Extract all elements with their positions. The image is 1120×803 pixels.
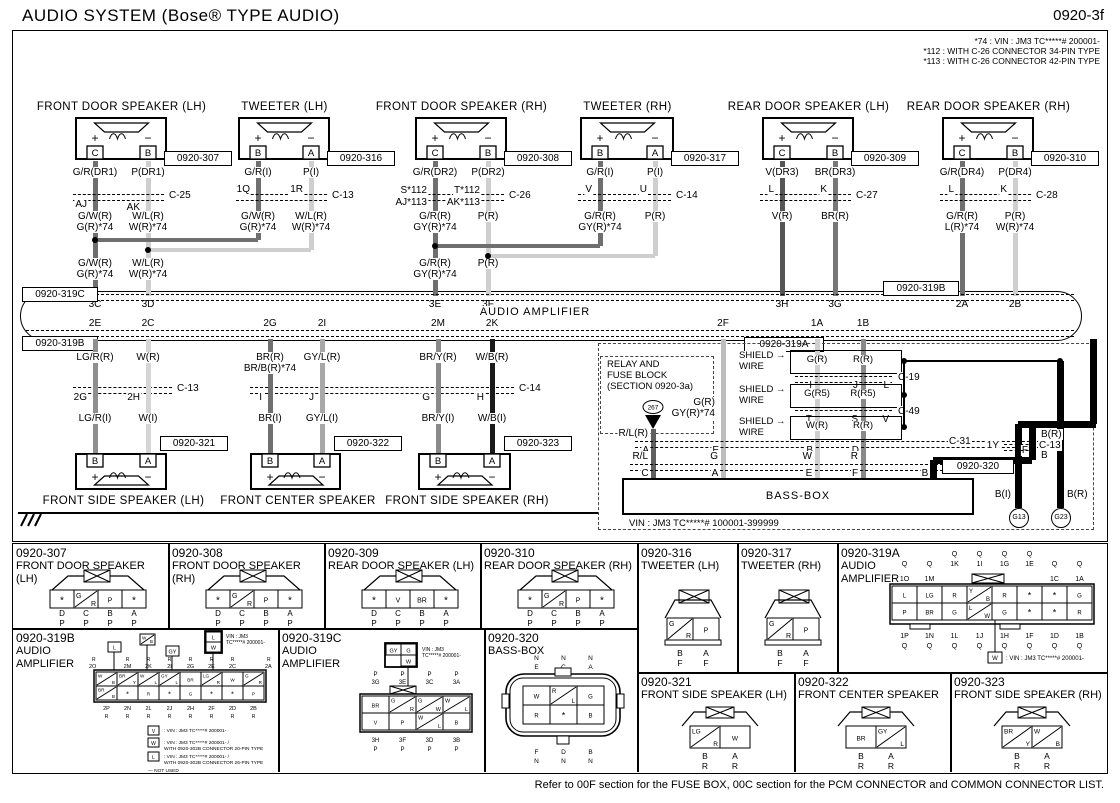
table-line xyxy=(637,672,1108,674)
svg-text:3H: 3H xyxy=(372,738,380,744)
wiring-diagram-page: AUDIO SYSTEM (Bose® TYPE AUDIO) 0920-3f … xyxy=(0,0,1120,803)
svg-text:E: E xyxy=(534,664,539,671)
table-line xyxy=(950,672,952,772)
svg-text:Q: Q xyxy=(902,561,908,568)
svg-text:GY: GY xyxy=(161,674,168,679)
table-line xyxy=(737,543,739,672)
connector-line xyxy=(250,387,514,394)
svg-text:L: L xyxy=(438,724,441,730)
svg-text:*: * xyxy=(1028,591,1032,601)
speaker-glyph: BA+− xyxy=(580,117,675,161)
svg-text:P: P xyxy=(527,619,532,628)
svg-text:*: * xyxy=(600,596,604,607)
svg-text:*: * xyxy=(1028,608,1032,618)
svg-text:*: * xyxy=(1053,608,1057,618)
pin-label: K xyxy=(819,184,828,195)
svg-text:P: P xyxy=(419,619,424,628)
table-cell-name: TWEETER (RH) xyxy=(741,560,833,573)
svg-text:B: B xyxy=(455,720,459,726)
svg-text:1L: 1L xyxy=(951,633,959,640)
svg-text:A: A xyxy=(652,148,659,159)
connector-pinout-glyph: NNNECAWRLGR*BFDBNNN xyxy=(498,650,628,768)
svg-text:P: P xyxy=(264,598,269,605)
svg-text:R: R xyxy=(686,633,691,640)
svg-text:BR: BR xyxy=(417,598,427,605)
wire-label: G(R)*74 xyxy=(76,222,115,233)
svg-text:2E: 2E xyxy=(208,664,215,670)
connector-ref: 0920-316 xyxy=(327,151,395,166)
connector-ref: 0920-319B xyxy=(883,281,959,296)
svg-text:*: * xyxy=(132,596,136,607)
svg-text:R: R xyxy=(1002,594,1007,600)
svg-text:P: P xyxy=(902,611,906,617)
svg-text:Q: Q xyxy=(1052,561,1058,568)
pin-label: I xyxy=(258,392,263,403)
wire-label: W/L(R) xyxy=(131,258,165,269)
wire xyxy=(651,429,656,478)
wire-label: R(R) xyxy=(852,421,874,431)
svg-text:P: P xyxy=(576,598,581,605)
svg-text:Q: Q xyxy=(927,561,933,568)
svg-text:N: N xyxy=(561,655,566,662)
svg-text:BR: BR xyxy=(187,677,194,682)
junction-dot xyxy=(901,424,907,430)
wire-label: G/W(R) xyxy=(77,211,113,222)
svg-text:3B: 3B xyxy=(453,738,460,744)
svg-text:Q: Q xyxy=(1027,643,1033,650)
shield-wire-label: WIRE xyxy=(738,396,765,406)
svg-text:*: * xyxy=(168,689,171,698)
wire-label: G/W(R) xyxy=(240,211,276,222)
wire xyxy=(833,161,838,296)
svg-text:B: B xyxy=(832,148,838,159)
wire-label: GY/L(I) xyxy=(305,413,339,424)
wire-label: W(R) xyxy=(135,352,160,363)
svg-text:1K: 1K xyxy=(950,561,959,568)
wire-label: P(DR1) xyxy=(130,167,165,178)
wire-label: R/L(R) xyxy=(618,428,649,439)
svg-text:*: * xyxy=(444,596,448,607)
wire-label: G xyxy=(709,451,719,462)
amp-pin-label: 2K xyxy=(485,318,499,329)
svg-text:A: A xyxy=(599,609,605,618)
connector-ref: 0920-323 xyxy=(504,436,572,451)
wire-label: LG/R(R) xyxy=(75,352,114,363)
svg-text:P: P xyxy=(599,619,604,628)
svg-text:P: P xyxy=(427,672,431,678)
wire xyxy=(1015,424,1022,508)
svg-text:W: W xyxy=(984,614,990,620)
svg-text:R: R xyxy=(231,657,235,663)
pin-label: AJ*113 xyxy=(394,197,428,208)
svg-text:G: G xyxy=(1002,611,1007,617)
fuse-icon: 267 xyxy=(638,398,668,432)
svg-text:F: F xyxy=(777,658,782,668)
wire-label: BR/B(R)*74 xyxy=(243,363,297,374)
wire-label: BR/Y(I) xyxy=(421,413,456,424)
svg-text:GY: GY xyxy=(390,649,398,655)
speaker-title: FRONT SIDE SPEAKER (RH) xyxy=(385,495,549,507)
wire-label: P(DR4) xyxy=(997,167,1032,178)
svg-text:C: C xyxy=(83,609,89,618)
pin-label: S*112 xyxy=(399,185,428,196)
svg-text:R: R xyxy=(247,601,252,608)
svg-text:−: − xyxy=(1011,131,1018,145)
svg-text:BR: BR xyxy=(98,688,105,693)
svg-text:R: R xyxy=(126,657,130,663)
svg-text:*: * xyxy=(210,689,213,698)
table-cell-name: FRONT SIDE SPEAKER (RH) xyxy=(954,689,1104,702)
wire-label: G(R) xyxy=(692,397,716,408)
svg-text:1G: 1G xyxy=(1000,561,1009,568)
wire xyxy=(148,248,311,252)
svg-text:2P: 2P xyxy=(103,706,110,712)
svg-text:1M: 1M xyxy=(925,576,935,583)
svg-text:1A: 1A xyxy=(1075,576,1084,583)
svg-text:C: C xyxy=(779,148,786,159)
svg-text:Q: Q xyxy=(927,643,933,650)
svg-text:R: R xyxy=(189,714,193,720)
wire xyxy=(488,254,655,258)
table-line xyxy=(794,672,796,772)
svg-text:B: B xyxy=(267,456,273,467)
svg-text:2N: 2N xyxy=(124,706,131,712)
wire-label: W/B(I) xyxy=(477,413,507,424)
c31-line xyxy=(635,441,1040,448)
svg-text:*: * xyxy=(1053,591,1057,601)
wire-label: GY(R)*74 xyxy=(412,269,457,280)
junction-dot xyxy=(145,247,151,253)
wire-label: G(R)*74 xyxy=(76,269,115,280)
svg-text:B: B xyxy=(986,597,990,603)
wire xyxy=(486,161,491,296)
svg-text:G: G xyxy=(1077,594,1082,600)
pin-label: 2G xyxy=(73,392,88,403)
svg-text:: VIN : JM3 TC*****# 200001- /: : VIN : JM3 TC*****# 200001- / xyxy=(164,754,230,760)
svg-text:+: + xyxy=(431,131,438,145)
speaker-glyph: BA+− xyxy=(418,453,512,491)
speaker-glyph: BA+− xyxy=(250,453,342,491)
speaker-title: TWEETER (RH) xyxy=(583,101,671,113)
svg-text:D: D xyxy=(561,749,566,756)
svg-text:Q: Q xyxy=(902,643,908,650)
svg-text:L: L xyxy=(212,636,215,642)
wire-label: G/R(R) xyxy=(418,211,452,222)
amp-pin-label: 2G xyxy=(262,318,277,329)
svg-text:C: C xyxy=(395,609,401,618)
connector-ref: 0920-320 xyxy=(942,459,1014,474)
svg-text:R: R xyxy=(210,657,214,663)
connector-pinout-glyph: *GRP*DCBAPPPP xyxy=(508,568,624,630)
svg-text:G: G xyxy=(76,593,81,600)
connector-label: C-13 xyxy=(331,190,355,201)
svg-text:B: B xyxy=(485,148,491,159)
svg-text:LG: LG xyxy=(925,594,933,600)
svg-text:Q: Q xyxy=(1027,551,1033,558)
svg-text:W: W xyxy=(732,735,739,742)
speaker-title: FRONT CENTER SPEAKER xyxy=(220,495,375,507)
amp-pin-label: 1A xyxy=(810,318,824,329)
svg-text:−: − xyxy=(307,131,314,145)
svg-text:V: V xyxy=(374,720,378,726)
amp-pin-label: 2A xyxy=(955,299,969,310)
svg-text:*: * xyxy=(216,596,220,607)
svg-text:W: W xyxy=(436,707,442,713)
svg-text:B: B xyxy=(419,609,424,618)
svg-text:P: P xyxy=(395,619,400,628)
svg-text:2J: 2J xyxy=(167,706,173,712)
svg-text:WITH 0920-302B CONNECTOR 20-PI: WITH 0920-302B CONNECTOR 20-PIN TYPE xyxy=(164,746,263,752)
svg-text:+: + xyxy=(266,470,273,484)
wire-label: W xyxy=(802,451,813,462)
svg-text:D: D xyxy=(527,609,533,618)
pin-label: 1R xyxy=(289,184,304,195)
svg-text:3E: 3E xyxy=(399,680,406,686)
svg-text:1F: 1F xyxy=(1025,633,1033,640)
wire-label: G(R5) xyxy=(803,389,831,399)
pin-label: J xyxy=(308,392,315,403)
svg-text:A: A xyxy=(588,664,593,671)
svg-text:L: L xyxy=(175,680,178,685)
svg-text:*: * xyxy=(126,689,129,698)
svg-text:P: P xyxy=(263,619,268,628)
pin-label: L xyxy=(947,184,955,195)
bass-box-label: BASS-BOX xyxy=(765,490,831,502)
svg-text:B: B xyxy=(777,648,783,658)
ground-g23: G23 xyxy=(1051,508,1071,528)
svg-text:R: R xyxy=(786,633,791,640)
wire-label: GY(R)*74 xyxy=(671,408,716,419)
svg-text:B: B xyxy=(858,751,864,761)
svg-text:B: B xyxy=(112,680,115,685)
svg-text:A: A xyxy=(131,609,137,618)
pin-label: G xyxy=(421,392,431,403)
svg-text:G: G xyxy=(769,621,774,628)
connector-label: C-14 xyxy=(675,190,699,201)
amp-pin-label: 2B xyxy=(1008,299,1022,310)
wire-label: L(R)*74 xyxy=(944,222,980,233)
table-cell-id: 0920-307 xyxy=(16,546,67,560)
svg-text:B: B xyxy=(255,148,261,159)
svg-text:R: R xyxy=(252,714,256,720)
svg-text:B: B xyxy=(1014,751,1020,761)
svg-text:R: R xyxy=(888,761,894,771)
svg-text:1O: 1O xyxy=(900,576,910,583)
connector-label: C-28 xyxy=(1035,190,1059,201)
wire-label: R xyxy=(850,451,859,462)
page-title: AUDIO SYSTEM (Bose® TYPE AUDIO) xyxy=(22,6,340,26)
svg-text:W: W xyxy=(1034,729,1041,736)
svg-text:: VIN : JM3 TC*****# 200001- /: : VIN : JM3 TC*****# 200001- / xyxy=(164,740,230,746)
svg-text:P: P xyxy=(804,628,809,635)
table-cell-name: FRONT CENTER SPEAKER xyxy=(798,689,948,702)
svg-text:BR: BR xyxy=(372,703,380,709)
svg-text:V: V xyxy=(396,598,401,605)
svg-text:B: B xyxy=(435,456,441,467)
svg-text:C: C xyxy=(959,148,966,159)
junction-dot xyxy=(485,253,491,259)
vin-note: *74 : VIN : JM3 TC*****# 200001- xyxy=(974,36,1100,46)
pin-label: 1Q xyxy=(236,184,251,195)
svg-text:A: A xyxy=(287,609,293,618)
wire-label: P(R) xyxy=(1004,211,1027,222)
svg-text:3A: 3A xyxy=(453,680,460,686)
wire-label: GY(R)*74 xyxy=(412,222,457,233)
svg-text:R: R xyxy=(702,761,708,771)
svg-text:*: * xyxy=(60,596,64,607)
svg-text:A: A xyxy=(319,456,326,467)
table-cell-id: 0920-309 xyxy=(328,546,379,560)
svg-text:3F: 3F xyxy=(399,738,406,744)
svg-text:−: − xyxy=(488,470,495,484)
svg-text:P: P xyxy=(454,672,458,678)
svg-text:+: + xyxy=(254,131,261,145)
svg-text:P: P xyxy=(575,619,580,628)
svg-text:B: B xyxy=(145,148,151,159)
svg-text:R: R xyxy=(552,689,557,695)
amp-pin-label: 3D xyxy=(141,299,156,310)
svg-text:−: − xyxy=(144,470,151,484)
svg-text:Q: Q xyxy=(1077,561,1083,568)
svg-text:2O: 2O xyxy=(89,664,97,670)
svg-text:P: P xyxy=(373,747,377,753)
svg-text:P: P xyxy=(371,619,376,628)
wire xyxy=(1090,339,1097,424)
connector-ref: 0920-322 xyxy=(334,436,402,451)
ground-g13: G13 xyxy=(1009,508,1029,528)
svg-text:P: P xyxy=(373,672,377,678)
svg-text:: VIN : JM3 TC*****# 200001-: : VIN : JM3 TC*****# 200001- xyxy=(1006,656,1084,662)
svg-text:C: C xyxy=(551,609,557,618)
svg-text:N: N xyxy=(534,758,539,765)
relay-block-label: RELAY AND xyxy=(606,360,660,370)
svg-text:LG: LG xyxy=(692,729,701,736)
svg-text:W: W xyxy=(142,636,147,641)
svg-text:Y: Y xyxy=(969,589,973,595)
connector-pinout-glyph: GRPBAFF xyxy=(753,586,833,670)
wire-label: GY(R)*74 xyxy=(577,222,622,233)
svg-text:1P: 1P xyxy=(900,633,909,640)
svg-text:N: N xyxy=(588,655,593,662)
wire-label: W/L(R) xyxy=(294,211,328,222)
speaker-title: TWEETER (LH) xyxy=(241,101,328,113)
svg-text:B: B xyxy=(92,456,98,467)
svg-text:Q: Q xyxy=(952,643,958,650)
svg-text:B: B xyxy=(107,609,112,618)
c13-line xyxy=(1004,444,1034,451)
svg-text:G: G xyxy=(232,593,237,600)
table-line xyxy=(168,543,170,628)
svg-text:*: * xyxy=(562,711,566,721)
svg-text:GY: GY xyxy=(169,650,177,656)
svg-text:+: + xyxy=(778,131,785,145)
svg-text:D: D xyxy=(215,609,221,618)
speaker-glyph: BA+− xyxy=(75,453,168,491)
connector-pinout-glyph: BRGYLBARR xyxy=(824,706,928,772)
pin-label: V xyxy=(584,184,593,195)
connector-pinout-glyph: *GRP*DCBAPPPP xyxy=(196,568,312,630)
speaker-glyph: CB+− xyxy=(942,117,1035,161)
wire-label: V(DR3) xyxy=(764,167,799,178)
amp-pin-label: 2E xyxy=(88,318,102,329)
amp-pin-label: 2I xyxy=(317,318,327,329)
svg-text:BR: BR xyxy=(925,611,934,617)
pin-label: L xyxy=(767,184,775,195)
svg-text:3G: 3G xyxy=(371,680,379,686)
wire-label: G/R(R) xyxy=(945,211,979,222)
svg-text:R: R xyxy=(559,601,564,608)
connector-pinout-glyph: *VBR*DCBAPPPP xyxy=(352,568,468,630)
svg-text:R: R xyxy=(168,714,172,720)
svg-text:+: + xyxy=(91,470,98,484)
svg-text:P: P xyxy=(443,619,448,628)
svg-text:B: B xyxy=(263,609,268,618)
svg-text:C: C xyxy=(92,148,99,159)
svg-text:−: − xyxy=(144,131,151,145)
svg-text:P: P xyxy=(454,747,458,753)
svg-text:L: L xyxy=(113,646,116,652)
connector-pinout-glyph: LWBGYLWVIN : JM3TC*****# 200001-RRRRRR2M… xyxy=(88,630,274,772)
wire xyxy=(721,339,726,478)
svg-text:G: G xyxy=(544,593,549,600)
svg-text:R: R xyxy=(231,714,235,720)
svg-text:R: R xyxy=(147,657,151,663)
svg-text:1I: 1I xyxy=(977,561,983,568)
wire-label: W(R)*74 xyxy=(291,222,331,233)
wire-label: BR(I) xyxy=(257,413,282,424)
wire-label: BR(DR3) xyxy=(814,167,857,178)
table-cell-name: TWEETER (LH) xyxy=(641,560,733,573)
svg-text:−: − xyxy=(484,131,491,145)
speaker-title: FRONT DOOR SPEAKER (RH) xyxy=(376,101,547,113)
wire-label: W(R) xyxy=(805,421,829,431)
svg-text:1N: 1N xyxy=(925,633,934,640)
svg-text:W: W xyxy=(230,677,235,682)
wire-label: P(R) xyxy=(644,211,667,222)
svg-text:P: P xyxy=(427,747,431,753)
svg-text:1D: 1D xyxy=(1050,633,1059,640)
svg-text:P: P xyxy=(215,619,220,628)
pin-label: T*112 xyxy=(453,185,481,196)
svg-text:Q: Q xyxy=(1052,643,1058,650)
svg-text:N: N xyxy=(534,655,539,662)
pin-label: AJ xyxy=(74,199,88,210)
svg-text:TC*****# 200001-: TC*****# 200001- xyxy=(422,653,461,659)
relay-block-label: FUSE BLOCK xyxy=(606,371,668,381)
svg-text:2I: 2I xyxy=(167,664,172,670)
svg-text:G: G xyxy=(418,699,422,705)
svg-text:G: G xyxy=(189,691,193,696)
table-line xyxy=(837,543,839,672)
svg-text:3D: 3D xyxy=(426,738,434,744)
svg-text:2G: 2G xyxy=(187,664,194,670)
amp-pin-label: 2C xyxy=(141,318,156,329)
wire xyxy=(95,238,258,242)
svg-text:N: N xyxy=(561,758,566,765)
wire-label: BR(R) xyxy=(255,352,285,363)
connector-pinout-glyph: *GRP*DCBAPPPP xyxy=(40,568,156,630)
svg-text:2B: 2B xyxy=(250,706,257,712)
shield-wire-label: SHIELD → xyxy=(738,385,786,395)
svg-text:W: W xyxy=(140,674,145,679)
svg-text:A: A xyxy=(1044,751,1050,761)
svg-text:P: P xyxy=(59,619,64,628)
wire-label: G/R(DR1) xyxy=(72,167,118,178)
svg-text:R: R xyxy=(1014,761,1020,771)
connector-pinout-glyph: LGRWBARR xyxy=(668,706,772,772)
wire-label: BR/Y(R) xyxy=(418,352,457,363)
connector-label: C-31 xyxy=(948,436,972,447)
